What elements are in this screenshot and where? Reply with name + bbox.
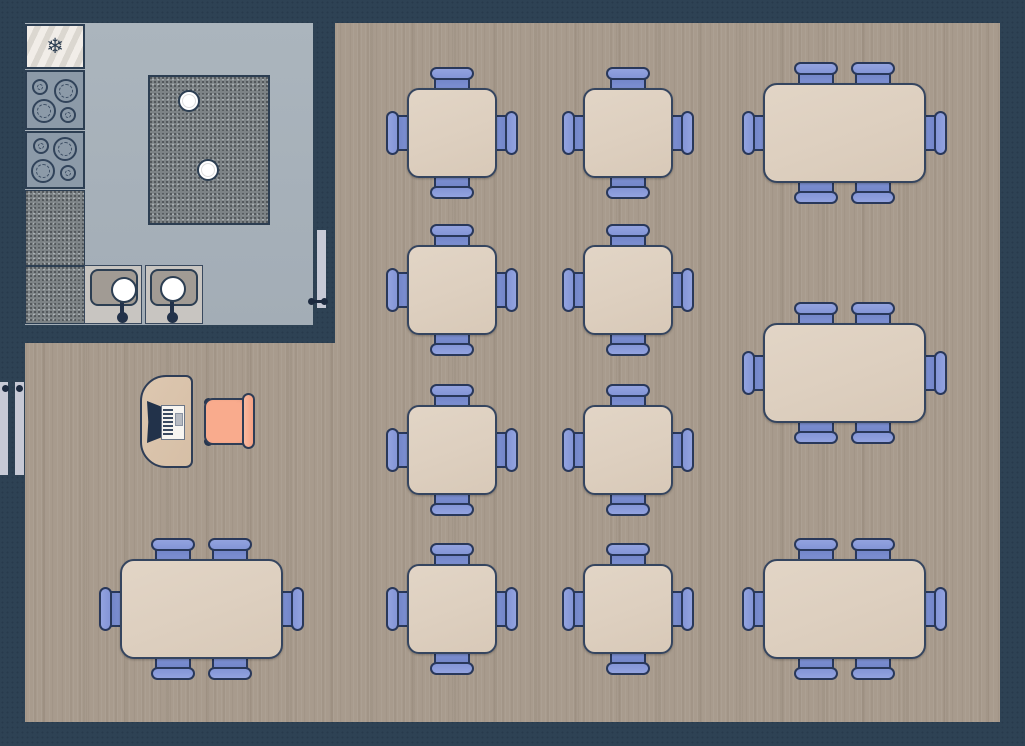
chair-back — [934, 111, 947, 155]
chair-back — [505, 268, 518, 312]
chair-back — [505, 587, 518, 631]
chair-back — [851, 191, 895, 204]
chair-back — [430, 67, 474, 80]
chair-back — [794, 431, 838, 444]
chair-back — [386, 428, 399, 472]
chair-back — [681, 111, 694, 155]
dining-table-4-seat[interactable] — [583, 88, 673, 178]
dining-table-4-seat[interactable] — [583, 564, 673, 654]
chair-back — [151, 538, 195, 551]
dining-table-4-seat[interactable] — [407, 405, 497, 495]
dining-table-4-seat[interactable] — [407, 88, 497, 178]
kitchen-island[interactable] — [148, 75, 270, 225]
chair-back — [505, 111, 518, 155]
chair-back — [208, 538, 252, 551]
door-knob — [16, 385, 23, 392]
kitchen-counter[interactable] — [25, 190, 85, 266]
chair-back — [430, 343, 474, 356]
chair-back — [934, 587, 947, 631]
chair-back — [386, 111, 399, 155]
stove[interactable] — [25, 131, 85, 189]
chair-back — [151, 667, 195, 680]
chair-back — [606, 384, 650, 397]
faucet-knob — [167, 312, 178, 323]
refrigerator[interactable]: ❄ — [25, 24, 85, 69]
chair-back — [794, 538, 838, 551]
chair-back — [851, 667, 895, 680]
stove-burner — [54, 79, 78, 103]
chair-back — [606, 186, 650, 199]
chair-back — [681, 428, 694, 472]
stove-burner — [60, 165, 76, 181]
chair-back — [794, 62, 838, 75]
chair-back — [430, 662, 474, 675]
chair-back — [742, 351, 755, 395]
chair-back — [208, 667, 252, 680]
chair-back — [386, 587, 399, 631]
dining-table-6-seat[interactable] — [763, 83, 926, 183]
chair-back — [430, 224, 474, 237]
kitchen-door[interactable] — [317, 230, 326, 308]
office-chair-back — [242, 393, 255, 449]
chair-back — [681, 268, 694, 312]
chair-back — [606, 224, 650, 237]
stove-burner — [31, 159, 55, 183]
faucet-knob — [117, 312, 128, 323]
service-door-panel[interactable] — [15, 382, 24, 475]
stove-burner — [32, 99, 56, 123]
chair-back — [794, 302, 838, 315]
chair-back — [562, 428, 575, 472]
chair-back — [562, 268, 575, 312]
door-knob — [2, 385, 9, 392]
dining-table-6-seat[interactable] — [763, 323, 926, 423]
chair-back — [934, 351, 947, 395]
chair-back — [430, 543, 474, 556]
chair-back — [430, 186, 474, 199]
service-door-panel[interactable] — [0, 382, 8, 475]
floor-plan-canvas: ❄ — [0, 0, 1025, 746]
chair-back — [606, 67, 650, 80]
stove-burner — [53, 137, 77, 161]
sink-bowl — [160, 276, 186, 302]
dining-table-6-seat[interactable] — [763, 559, 926, 659]
door-knob — [321, 298, 328, 305]
chair-back — [851, 62, 895, 75]
dining-table-6-seat[interactable] — [120, 559, 283, 659]
chair-back — [794, 191, 838, 204]
dining-table-4-seat[interactable] — [407, 564, 497, 654]
door-knob — [308, 298, 315, 305]
chair-back — [99, 587, 112, 631]
chair-back — [606, 343, 650, 356]
chair-back — [681, 587, 694, 631]
chair-back — [291, 587, 304, 631]
chair-back — [430, 384, 474, 397]
chair-back — [606, 543, 650, 556]
chair-back — [606, 662, 650, 675]
chair-back — [562, 587, 575, 631]
chair-back — [794, 667, 838, 680]
chair-back — [742, 111, 755, 155]
dining-table-4-seat[interactable] — [583, 245, 673, 335]
sink-bowl — [111, 277, 137, 303]
chair-back — [851, 431, 895, 444]
dining-table-4-seat[interactable] — [583, 405, 673, 495]
stove-burner — [60, 107, 76, 123]
chair-back — [606, 503, 650, 516]
kitchen-counter[interactable] — [25, 266, 85, 324]
stove-burner — [33, 138, 49, 154]
plate — [178, 90, 200, 112]
chair-back — [386, 268, 399, 312]
register-key — [175, 413, 183, 426]
snowflake-icon: ❄ — [46, 36, 64, 57]
stove-burner — [32, 79, 48, 95]
chair-back — [430, 503, 474, 516]
chair-back — [851, 538, 895, 551]
register-keys — [163, 409, 173, 436]
chair-back — [851, 302, 895, 315]
chair-back — [562, 111, 575, 155]
stove[interactable] — [25, 70, 85, 130]
plate — [197, 159, 219, 181]
chair-back — [742, 587, 755, 631]
dining-table-4-seat[interactable] — [407, 245, 497, 335]
chair-back — [505, 428, 518, 472]
